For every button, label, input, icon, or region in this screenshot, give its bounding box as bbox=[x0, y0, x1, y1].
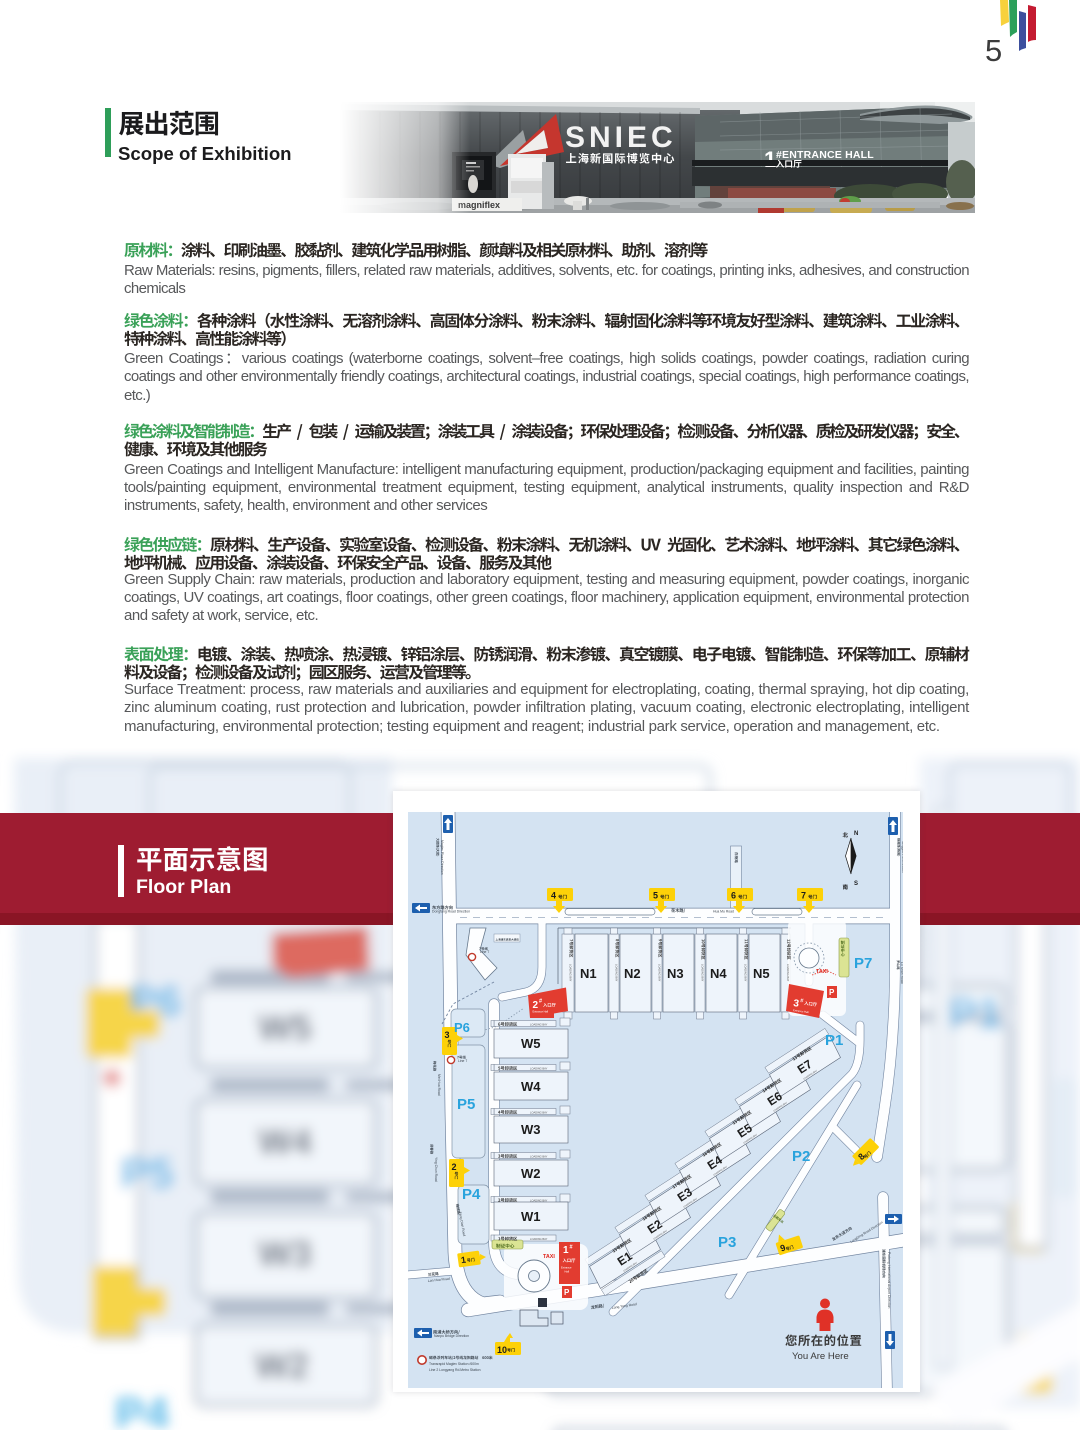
svg-text:LOADING BAY: LOADING BAY bbox=[683, 1197, 698, 1208]
svg-text:You Are Here: You Are Here bbox=[792, 1351, 849, 1362]
svg-text:LOADING BAY: LOADING BAY bbox=[615, 964, 619, 982]
svg-text:Hall: Hall bbox=[565, 1270, 570, 1274]
svg-text:LOADING BAY: LOADING BAY bbox=[744, 964, 748, 982]
svg-text:LOADING BAY: LOADING BAY bbox=[786, 964, 790, 982]
svg-text:LOADING BAY: LOADING BAY bbox=[653, 1229, 668, 1240]
svg-text:LOADING BAY: LOADING BAY bbox=[623, 1261, 638, 1272]
svg-text:LOADING BAY: LOADING BAY bbox=[658, 964, 662, 982]
svg-text:LOADING BAY: LOADING BAY bbox=[701, 964, 705, 982]
svg-text:P: P bbox=[829, 997, 831, 1001]
svg-text:LOADING BAY: LOADING BAY bbox=[743, 1133, 758, 1144]
svg-text:LOADING BAY: LOADING BAY bbox=[569, 964, 573, 982]
svg-text:Entrance Hall: Entrance Hall bbox=[793, 1008, 809, 1014]
svg-text:Entrance: Entrance bbox=[561, 1266, 572, 1270]
svg-text:Entrance Hall: Entrance Hall bbox=[533, 1010, 549, 1014]
svg-text:LOADING BAY: LOADING BAY bbox=[713, 1165, 728, 1176]
svg-text:LOADING BAY: LOADING BAY bbox=[803, 1069, 818, 1080]
svg-text:LOADING BAY: LOADING BAY bbox=[773, 1101, 788, 1112]
